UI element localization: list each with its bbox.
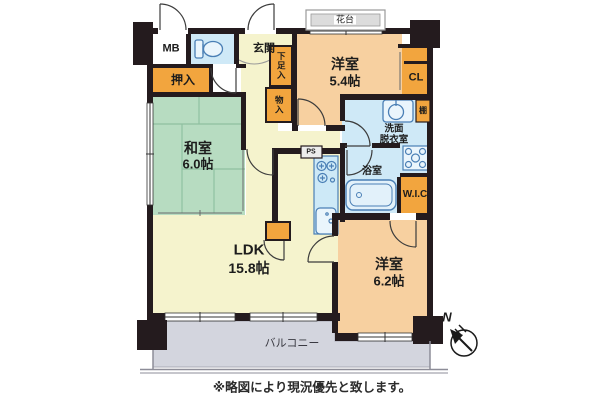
front-door <box>248 4 274 30</box>
label-ldk-name: LDK <box>234 243 265 258</box>
toilet-icon <box>195 40 223 58</box>
label-ldk-size: 15.8帖 <box>228 261 269 275</box>
compass-icon <box>450 325 477 356</box>
label-bedroom1-size: 5.4帖 <box>329 75 360 88</box>
label-balcony: バルコニー <box>265 339 320 350</box>
label-senmen-line1: 洗面 <box>384 124 403 134</box>
label-oshiire: 押入 <box>171 74 195 86</box>
label-shelf: 棚 <box>419 107 427 115</box>
pillar-top-right <box>410 20 440 48</box>
pillar-bottom-left <box>137 320 167 350</box>
label-compass-north: N <box>442 311 451 324</box>
pillar-bottom-right <box>413 316 443 344</box>
bathtub-icon <box>346 180 396 210</box>
label-washitsu-name: 和室 <box>184 141 212 155</box>
label-senmen-line2: 脱衣室 <box>380 135 409 145</box>
window-ldk-2 <box>250 312 317 322</box>
label-monoire: 物入 <box>275 96 284 115</box>
label-wic: W.I.C <box>403 190 427 200</box>
pillar-top-left <box>133 22 153 65</box>
label-getabako: 下足入 <box>277 52 286 81</box>
label-bath: 浴室 <box>362 167 382 177</box>
washbasin-icon <box>383 100 413 122</box>
disclaimer-note: ※略図により現況優先と致します。 <box>213 377 411 396</box>
label-bedroom2-size: 6.2帖 <box>373 275 404 288</box>
cl-shelf <box>404 61 430 64</box>
floor-plan: MB 玄関 下足入 物入 押入 和室 6.0帖 洋室 5.4帖 CL 棚 洗面 … <box>0 0 600 400</box>
label-bedroom2-name: 洋室 <box>375 257 403 271</box>
corridor-lower <box>246 148 272 226</box>
window-ldk-1 <box>165 312 235 322</box>
label-cl: CL <box>409 73 424 84</box>
ldk-door-box <box>266 222 290 240</box>
meter-box-door <box>160 4 186 30</box>
window-bedroom2 <box>358 332 412 342</box>
washing-machine-icon <box>403 146 428 170</box>
label-pipe-space: PS <box>306 149 315 156</box>
toilet-vestibule <box>213 68 241 92</box>
label-bedroom1-name: 洋室 <box>331 57 359 71</box>
label-genkan: 玄関 <box>253 44 275 55</box>
label-flower-stand: 花台 <box>334 16 356 25</box>
label-washitsu-size: 6.0帖 <box>182 158 213 171</box>
window-washitsu-left <box>146 103 154 205</box>
label-meter-box: MB <box>162 44 179 55</box>
